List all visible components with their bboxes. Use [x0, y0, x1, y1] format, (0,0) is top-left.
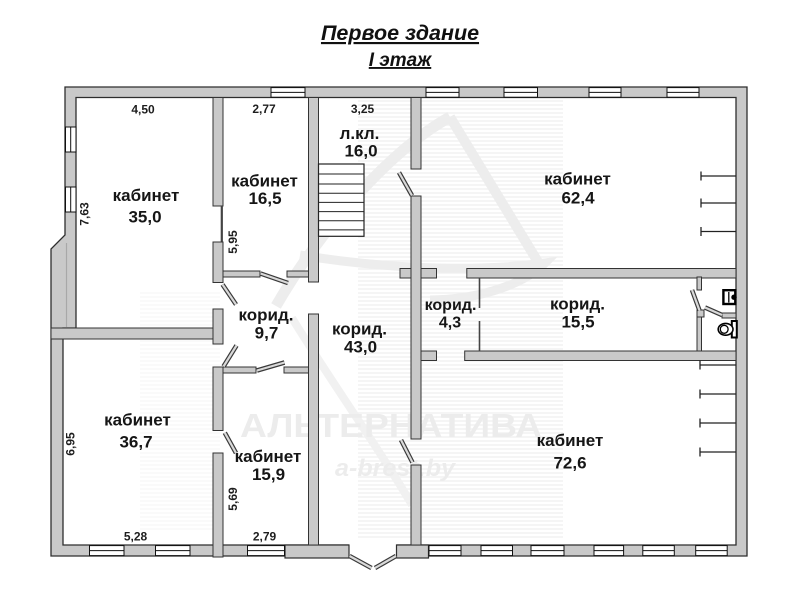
svg-text:I этаж: I этаж — [369, 50, 433, 71]
svg-text:4,3: 4,3 — [439, 315, 461, 332]
svg-text:15,9: 15,9 — [252, 465, 285, 484]
svg-text:5,69: 5,69 — [226, 487, 240, 511]
svg-text:л.кл.: л.кл. — [340, 124, 380, 143]
svg-text:43,0: 43,0 — [344, 338, 377, 357]
svg-text:36,7: 36,7 — [119, 433, 152, 452]
svg-text:Первое здание: Первое здание — [321, 21, 479, 45]
svg-text:6,95: 6,95 — [64, 432, 78, 456]
svg-text:кабинет: кабинет — [235, 447, 302, 466]
svg-text:5,28: 5,28 — [124, 530, 148, 544]
svg-text:кабинет: кабинет — [104, 411, 171, 430]
svg-text:35,0: 35,0 — [128, 208, 161, 227]
svg-text:15,5: 15,5 — [561, 313, 594, 332]
svg-text:7,63: 7,63 — [78, 202, 92, 226]
svg-text:16,0: 16,0 — [344, 142, 377, 161]
svg-text:корид.: корид. — [550, 295, 605, 314]
svg-text:2,77: 2,77 — [252, 102, 276, 116]
svg-text:корид.: корид. — [238, 306, 293, 325]
svg-text:16,5: 16,5 — [248, 189, 281, 208]
svg-text:2,79: 2,79 — [253, 530, 277, 544]
svg-text:кабинет: кабинет — [113, 186, 180, 205]
svg-text:корид.: корид. — [332, 320, 387, 339]
svg-text:кабинет: кабинет — [544, 170, 611, 189]
svg-text:АЛЬТЕРНАТИВА: АЛЬТЕРНАТИВА — [240, 407, 542, 444]
svg-text:кабинет: кабинет — [231, 172, 298, 191]
svg-text:3,25: 3,25 — [351, 102, 375, 116]
svg-text:корид.: корид. — [425, 297, 477, 314]
svg-text:9,7: 9,7 — [255, 324, 279, 343]
svg-text:62,4: 62,4 — [561, 189, 595, 208]
svg-text:5,95: 5,95 — [226, 230, 240, 254]
svg-text:кабинет: кабинет — [537, 431, 604, 450]
svg-text:72,6: 72,6 — [553, 454, 586, 473]
svg-text:4,50: 4,50 — [131, 103, 155, 117]
svg-text:a-brest.by: a-brest.by — [335, 455, 457, 482]
